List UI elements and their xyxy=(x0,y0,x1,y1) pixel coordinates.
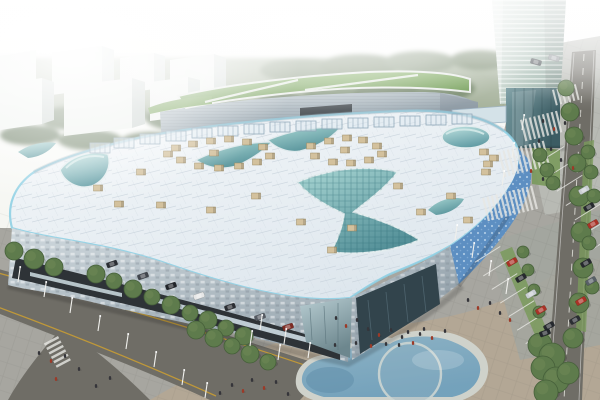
hvac-unit xyxy=(348,225,357,231)
aerial-rendering xyxy=(0,0,600,400)
hvac-unit xyxy=(343,135,352,141)
hvac-unit xyxy=(378,151,387,157)
hvac-unit xyxy=(447,193,456,199)
hvac-unit xyxy=(328,247,337,253)
roof-truss xyxy=(426,115,446,125)
hvac-unit xyxy=(266,153,275,159)
hvac-unit xyxy=(464,217,473,223)
hvac-unit xyxy=(252,193,261,199)
hvac-unit xyxy=(235,163,244,169)
hvac-unit xyxy=(484,161,493,167)
hvac-unit xyxy=(253,159,262,165)
hvac-unit xyxy=(311,153,320,159)
hvac-unit xyxy=(325,138,334,144)
hvac-unit xyxy=(259,144,268,150)
hvac-unit xyxy=(490,155,499,161)
pond-highlight xyxy=(412,350,464,370)
hvac-unit xyxy=(394,183,403,189)
hvac-unit xyxy=(347,160,356,166)
pond-deep-area xyxy=(306,367,354,393)
hvac-unit xyxy=(359,137,368,143)
hvac-unit xyxy=(417,209,426,215)
hvac-unit xyxy=(365,157,374,163)
hvac-unit xyxy=(480,149,489,155)
hvac-unit xyxy=(373,143,382,149)
hvac-unit xyxy=(329,159,338,165)
hvac-unit xyxy=(207,207,216,213)
street-tree xyxy=(587,189,600,203)
hvac-unit xyxy=(157,202,166,208)
hvac-unit xyxy=(307,143,316,149)
hvac-unit xyxy=(341,147,350,153)
hvac-unit xyxy=(482,169,491,175)
roof-truss xyxy=(452,114,472,124)
rendering-canvas xyxy=(0,0,600,400)
hvac-unit xyxy=(297,219,306,225)
